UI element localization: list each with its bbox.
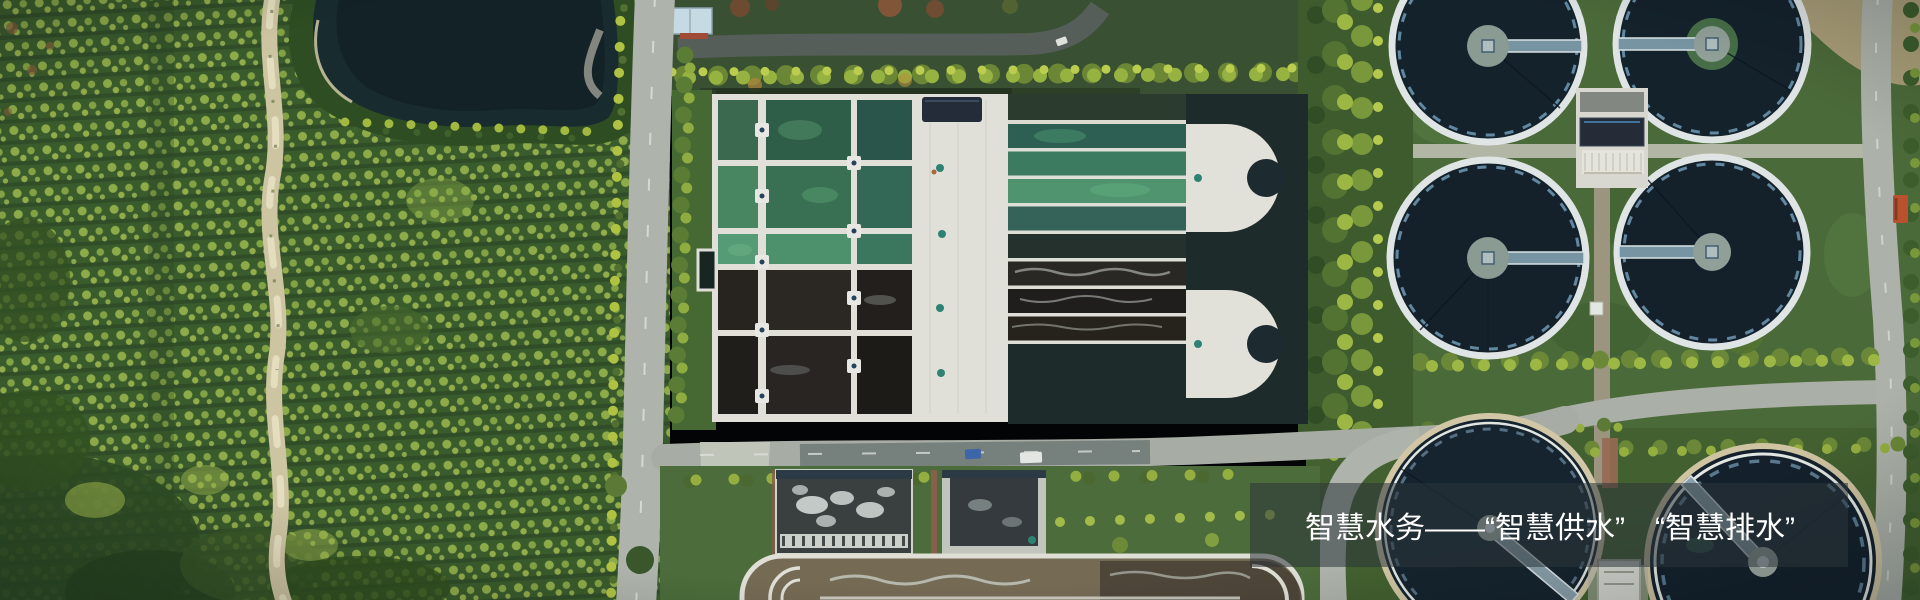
hero-caption-text: 智慧水务——“智慧供水” “智慧排水” xyxy=(1305,503,1795,547)
hero-caption-band: 智慧水务——“智慧供水” “智慧排水” xyxy=(1250,483,1848,567)
